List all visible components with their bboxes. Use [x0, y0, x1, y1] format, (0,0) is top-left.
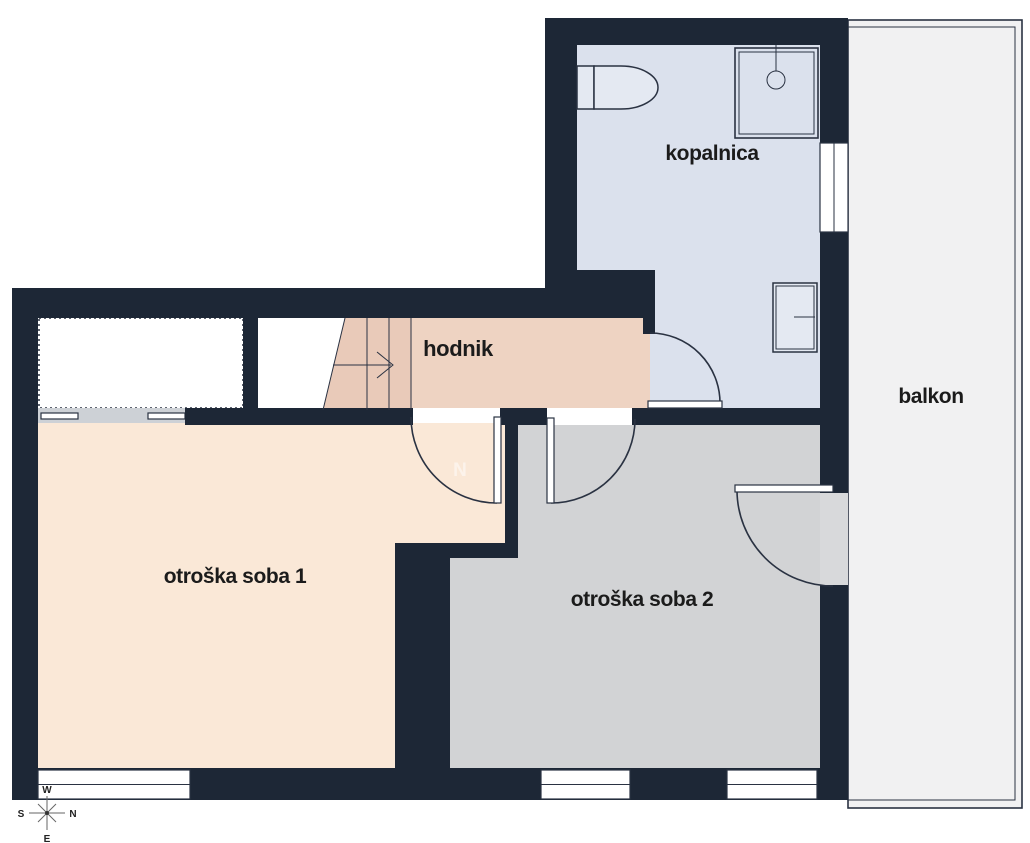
wall-bath-stub-step [643, 318, 655, 334]
door-kopalnica-leaf [648, 401, 722, 408]
wall-bath-stub [577, 270, 655, 318]
soba2-floor-left [450, 558, 518, 768]
door-soba2-leaf [547, 418, 554, 503]
door-balkon-leaf [735, 485, 833, 492]
wall-north-band [12, 288, 545, 318]
balkon-door-gap [820, 493, 848, 585]
wall-east-upper [820, 45, 848, 143]
toilet-icon [577, 66, 658, 109]
window-kopalnica-east [820, 143, 848, 232]
wall-hodnik-band-right [632, 408, 848, 425]
radiator-icon [773, 283, 817, 352]
wall-bath-left [545, 18, 577, 318]
wall-room-divider-lower [395, 543, 450, 768]
knee-wall-window-right [148, 413, 185, 419]
balkon-label: balkon [898, 385, 963, 408]
soba2-label: otroška soba 2 [571, 588, 714, 611]
wall-bath-top [545, 18, 848, 45]
soba1-floor-upper [38, 423, 505, 545]
balkon-floor [848, 20, 1022, 808]
wall-east-mid [820, 232, 848, 493]
compass-east: E [44, 834, 51, 843]
soba1-label: otroška soba 1 [164, 565, 307, 588]
door-soba1-leaf [494, 417, 501, 503]
wall-room-divider-upper [505, 408, 518, 558]
compass-south: S [18, 809, 25, 820]
wall-hodnik-band-left [185, 408, 413, 425]
wall-stairwell-left [243, 318, 258, 410]
compass-west: W [42, 785, 52, 796]
window-soba1-south [38, 770, 190, 799]
compass-north: N [69, 809, 76, 820]
window-soba2-south-left [541, 770, 630, 799]
wall-east-lower [820, 585, 848, 768]
kopalnica-label: kopalnica [665, 142, 759, 165]
floor-plan-canvas: kopalnica hodnik balkon otroška soba 1 o… [0, 0, 1030, 843]
wall-west [12, 288, 38, 800]
floor-plan: kopalnica hodnik balkon otroška soba 1 o… [0, 0, 1030, 843]
watermark-n: N [453, 460, 467, 481]
hodnik-label: hodnik [423, 336, 494, 361]
window-soba2-south-right [727, 770, 817, 799]
roof-dashed-area [39, 318, 243, 408]
knee-wall-window-left [41, 413, 78, 419]
